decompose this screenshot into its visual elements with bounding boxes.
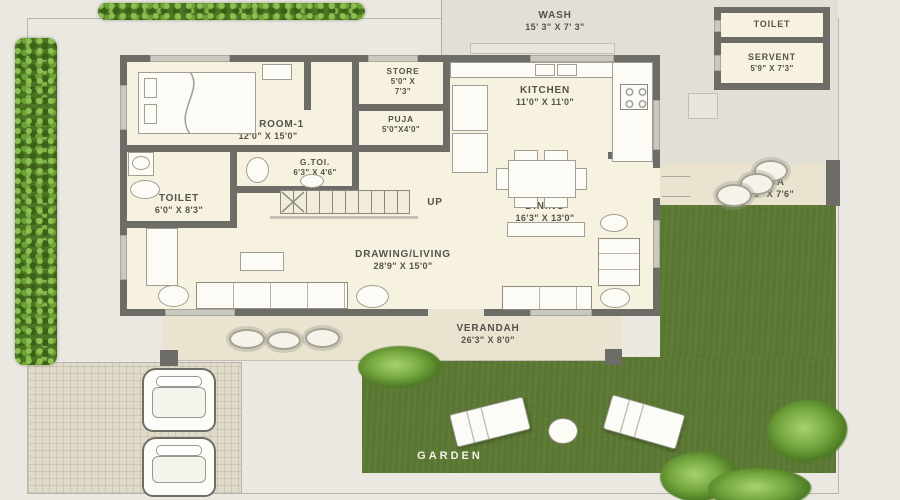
room-label-kitchen: KITCHEN 11'0" X 11'0" <box>465 84 625 109</box>
room-name: SERVENT <box>748 52 796 64</box>
room-dim: 5'9" X 7'3" <box>750 64 793 74</box>
fridge <box>452 85 488 131</box>
room-servant: SERVENT 5'9" X 7'3" <box>721 43 823 83</box>
room-dim: 26'3" X 8'0" <box>461 335 515 347</box>
room-dim: 7'3" <box>395 87 411 97</box>
wall-gtoilet-top <box>237 145 359 152</box>
wall-toilet-bottom <box>120 221 237 228</box>
wash-platform <box>470 43 615 54</box>
room-label-puja: PUJA 5'0"X4'0" <box>361 114 441 135</box>
floor-plan: WASH 15' 3" X 7' 3" KITCHEN 11'0" X 11'0… <box>0 0 900 500</box>
wall-bedroom-right <box>304 55 311 110</box>
room-label-verandah: VERANDAH 26'3" X 8'0" <box>408 322 568 347</box>
window <box>165 309 235 316</box>
room-name: WASH <box>538 9 571 22</box>
room-name: G.TOI. <box>300 157 330 168</box>
gtoilet-basin <box>300 174 324 188</box>
otta-step-line <box>662 176 690 177</box>
room-label-living: DRAWING/LIVING 28'9" X 15'0" <box>323 248 483 273</box>
room-name: KITCHEN <box>520 84 570 97</box>
room-dim: 5'0" X <box>391 77 416 87</box>
wall-puja-bottom <box>352 145 450 152</box>
car-windshield <box>156 376 202 387</box>
window <box>653 100 660 150</box>
room-name: DRAWING/LIVING <box>355 248 451 261</box>
verandah-planter <box>229 329 265 349</box>
car <box>142 368 216 432</box>
window <box>368 55 418 62</box>
garden-table <box>548 418 578 444</box>
bush <box>768 400 848 462</box>
hedge-top <box>98 3 365 20</box>
door-to-verandah <box>428 309 484 316</box>
room-toilet-out: TOILET <box>721 13 823 37</box>
window <box>530 55 614 62</box>
room-label-wash: WASH 15' 3" X 7' 3" <box>475 9 635 34</box>
door-servant <box>714 55 721 71</box>
bed-pillow <box>144 78 157 98</box>
hedge-left <box>15 38 57 365</box>
bed-blanket-curve <box>170 72 210 134</box>
garden-label: GARDEN <box>390 449 510 463</box>
bedside-table <box>262 64 292 80</box>
room-name: TOILET <box>159 192 199 205</box>
room-dim: 5'0"X4'0" <box>382 125 420 135</box>
verandah-post <box>605 349 622 365</box>
bed-pillow <box>144 104 157 124</box>
garden-text: GARDEN <box>417 449 483 463</box>
verandah-planter <box>305 328 340 348</box>
corner-table <box>600 214 628 232</box>
backyard-platform <box>688 93 718 119</box>
room-name: STORE <box>386 66 419 77</box>
up-text: UP <box>427 196 443 209</box>
car-windshield <box>156 445 202 456</box>
wall-toilet-top <box>120 145 237 152</box>
dining-bench <box>507 222 585 237</box>
car <box>142 437 216 497</box>
door-servant <box>714 20 721 32</box>
corner-table <box>600 288 630 308</box>
window <box>653 220 660 268</box>
room-dim: 28'9" X 15'0" <box>373 261 432 273</box>
side-table <box>158 285 189 307</box>
kitchen-sink <box>535 64 555 76</box>
car-cabin <box>152 456 206 483</box>
room-dim: 6'0" X 8'3" <box>155 205 203 217</box>
dining-table <box>508 160 576 198</box>
room-name: VERANDAH <box>456 322 519 335</box>
door-to-otta <box>653 168 660 198</box>
otta-step-line <box>662 196 690 197</box>
kitchen-sink <box>557 64 577 76</box>
window <box>120 235 127 280</box>
staircase-cross-icon <box>280 190 306 214</box>
verandah-planter <box>267 331 301 350</box>
sofa-long <box>196 282 348 309</box>
window <box>120 85 127 130</box>
room-label-store: STORE 5'0" X 7'3" <box>364 66 442 98</box>
room-name: TOILET <box>754 19 791 31</box>
kitchen-counter-top <box>450 62 615 78</box>
window <box>150 55 230 62</box>
room-dim: 11'0" X 11'0" <box>516 97 574 109</box>
sofa-side <box>598 238 640 286</box>
otta-wall-stub <box>826 160 840 206</box>
side-table <box>356 285 389 308</box>
otta-stepping-stone <box>716 184 752 207</box>
room-name: PUJA <box>388 114 414 125</box>
staircase-rail <box>270 216 418 219</box>
verandah-post <box>160 350 178 366</box>
center-table <box>240 252 284 271</box>
car-cabin <box>152 387 206 418</box>
stove <box>620 84 648 110</box>
wall-kitchen-left <box>443 55 450 152</box>
toilet-basin <box>132 156 150 170</box>
toilet-wc <box>130 180 160 199</box>
wall-store-puja-divider <box>352 104 450 111</box>
kitchen-counter-right <box>612 62 653 162</box>
bush <box>358 346 442 388</box>
sofa-right <box>502 286 592 310</box>
gtoilet-wc <box>246 157 269 183</box>
kitchen-cabinet <box>452 133 488 173</box>
tv-cabinet <box>146 228 178 286</box>
stairs-up-label: UP <box>420 196 450 209</box>
window <box>530 309 592 316</box>
room-dim: 15' 3" X 7' 3" <box>525 22 584 34</box>
